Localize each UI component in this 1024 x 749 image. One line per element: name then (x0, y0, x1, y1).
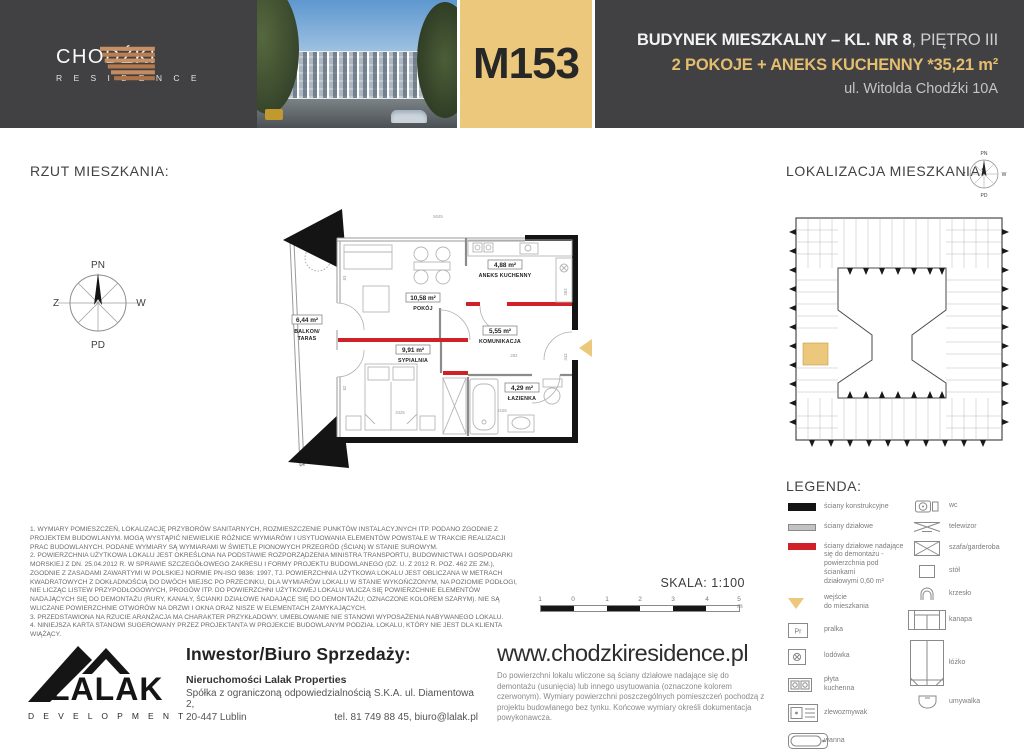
legend-item: wejście do mieszkania (788, 594, 906, 612)
entrance-arrow-icon (579, 339, 592, 357)
svg-text:Pr: Pr (795, 628, 803, 635)
logo-name: LALAK (50, 671, 163, 707)
kitchen-sink-icon (788, 704, 818, 722)
balkon-name1: BALKON/ (294, 329, 320, 335)
building-title: BUDYNEK MIESZKALNY – KL. NR 8, PIĘTRO II… (637, 31, 998, 50)
aneks-name: ANEKS KUCHENNY (479, 273, 532, 279)
legend-item: lodówka (788, 649, 906, 665)
svg-text:363: 363 (563, 288, 568, 296)
scale-bar (540, 605, 740, 612)
developer-logo: LALAK D E V E L O P M E N T (26, 640, 178, 728)
legend-title: LEGENDA: (786, 478, 862, 494)
header-info: BUDYNEK MIESZKALNY – KL. NR 8, PIĘTRO II… (595, 0, 1024, 128)
legend-item: płyta kuchenna (788, 676, 906, 694)
compass-south-label: PD (91, 340, 105, 351)
bathtub-icon (788, 733, 828, 749)
svg-text:343: 343 (563, 353, 568, 361)
legend-item: szafa/garderoba (905, 541, 1023, 556)
website-block: www.chodzkiresidence.pl Do powierzchni l… (497, 640, 767, 724)
svg-text:82: 82 (342, 385, 347, 390)
legend-item: telewizor (905, 522, 1023, 532)
svg-text:2155: 2155 (497, 408, 507, 413)
legend-item: wc (905, 500, 1023, 513)
washbasin-icon (918, 695, 937, 709)
photo-car (391, 110, 427, 123)
photo-machine (265, 109, 283, 120)
legend-item: stół (905, 565, 1023, 578)
balkon-area: 6,44 m² (296, 317, 318, 324)
disclaimer-notes: 1. WYMIARY POMIESZCZEŃ, LOKALIZACJĘ PRZY… (30, 526, 524, 640)
entrance-arrow-icon (788, 598, 804, 609)
building-title-light: , PIĘTRO III (911, 31, 998, 49)
chair-icon (919, 587, 935, 601)
header: CHODŹKI R E S I D E N C E M153 BUDYNEK M… (0, 0, 1024, 128)
brand-bars-icon (100, 41, 158, 87)
legend-item: wanna (788, 733, 906, 749)
legend-item: umywalka (905, 695, 1023, 709)
svg-text:282: 282 (510, 353, 518, 358)
highlighted-unit (803, 343, 828, 365)
compass-rose: PN PD Z W (48, 253, 148, 353)
lazienka-name: ŁAZIENKA (508, 396, 536, 402)
legend-left: ściany konstrukcyjne ściany działowe ści… (788, 503, 906, 749)
floorplan-title: RZUT MIESZKANIA: (30, 163, 169, 179)
note-2: 2. POWIERZCHNIA UŻYTKOWA LOKALU JEST OKR… (30, 552, 524, 613)
table-icon (919, 565, 935, 578)
svg-text:PD: PD (981, 193, 988, 199)
washer-icon: Pr (788, 623, 808, 638)
note-4: 4. NINIEJSZA KARTA STANOWI SUGEROWANY PR… (30, 622, 524, 640)
compass-west-label: Z (53, 298, 59, 309)
investor-block: Inwestor/Biuro Sprzedaży: Nieruchomości … (186, 644, 478, 723)
logo-sub: D E V E L O P M E N T (28, 711, 187, 721)
balkon-name2: TARAS (298, 336, 317, 342)
svg-text:83: 83 (342, 275, 347, 280)
wc-icon (915, 500, 939, 513)
structural-wall-icon (788, 503, 816, 511)
svg-text:5045: 5045 (433, 214, 443, 219)
compass-north-label: PN (91, 260, 105, 271)
legend-item: ściany działowe nadające się do demontaż… (788, 543, 906, 587)
sypialnia-area: 9,91 m² (402, 347, 424, 354)
legend-item: kanapa (905, 610, 1023, 630)
location-compass: PN PD Z W (952, 146, 1016, 204)
tv-icon (914, 522, 940, 532)
street-address: ul. Witolda Chodźki 10A (844, 81, 998, 97)
legend-item: ściany działowe (788, 523, 906, 532)
legend-item: ściany konstrukcyjne (788, 503, 906, 512)
legend-item: zlewozmywak (788, 704, 906, 722)
bed-icon (910, 640, 944, 686)
note-1: 1. WYMIARY POMIESZCZEŃ, LOKALIZACJĘ PRZY… (30, 526, 524, 552)
legend-item: krzesło (905, 587, 1023, 601)
investor-address: Spółka z ograniczoną odpowiedzialnością … (186, 688, 478, 710)
photo-building (283, 52, 433, 98)
compass-east-label: W (136, 298, 146, 309)
svg-text:PN: PN (981, 151, 988, 157)
scale-bar-group: SKALA: 1:100 1 0 1 2 3 4 5 m (540, 576, 745, 612)
scale-ticks: 1 0 1 2 3 4 5 m (540, 596, 745, 605)
svg-text:W: W (1002, 172, 1007, 178)
legend-right: wc telewizor szafa/garderoba stół krzesł… (905, 500, 1023, 720)
floorplan-svg: 6,44 m² BALKON/ TARAS 10,58 m² POKÓJ 4,8… (280, 200, 600, 482)
svg-text:3425: 3425 (395, 410, 405, 415)
removable-wall-icon (788, 543, 816, 550)
location-plan-svg (788, 202, 1022, 450)
building-title-bold: BUDYNEK MIESZKALNY – KL. NR 8 (637, 31, 911, 49)
scale-label: SKALA: 1:100 (540, 576, 745, 590)
aneks-area: 4,88 m² (494, 262, 516, 269)
lazienka-area: 4,29 m² (511, 385, 533, 392)
investor-company: Nieruchomości Lalak Properties (186, 674, 478, 686)
unit-code-badge: M153 (457, 0, 595, 128)
sofa-icon (908, 610, 946, 630)
komunikacja-name: KOMUNIKACJA (479, 339, 521, 345)
legend-item: Pr pralka (788, 623, 906, 638)
website-note: Do powierzchni lokalu wliczone są ściany… (497, 671, 767, 724)
investor-contact: tel. 81 749 88 45, biuro@lalak.pl (334, 712, 478, 723)
partition-wall-icon (788, 524, 816, 531)
unit-summary: 2 POKOJE + ANEKS KUCHENNY *35,21 m² (672, 56, 998, 75)
pokoj-area: 10,58 m² (410, 295, 436, 302)
wardrobe-icon (914, 541, 940, 556)
brand-logo: CHODŹKI R E S I D E N C E (0, 0, 257, 128)
komunikacja-area: 5,55 m² (489, 328, 511, 335)
pokoj-name: POKÓJ (413, 304, 433, 312)
website-link[interactable]: www.chodzkiresidence.pl (497, 640, 767, 667)
svg-text:Z: Z (962, 172, 965, 178)
hob-icon (788, 678, 812, 692)
investor-heading: Inwestor/Biuro Sprzedaży: (186, 644, 478, 665)
sypialnia-name: SYPIALNIA (398, 358, 428, 364)
investor-city: 20-447 Lublin (186, 712, 247, 723)
unit-code: M153 (473, 39, 579, 89)
apartment-card-page: CHODŹKI R E S I D E N C E M153 BUDYNEK M… (0, 0, 1024, 749)
legend-item: łóżko (905, 640, 1023, 686)
building-photo (257, 0, 457, 128)
fridge-icon (788, 649, 806, 665)
